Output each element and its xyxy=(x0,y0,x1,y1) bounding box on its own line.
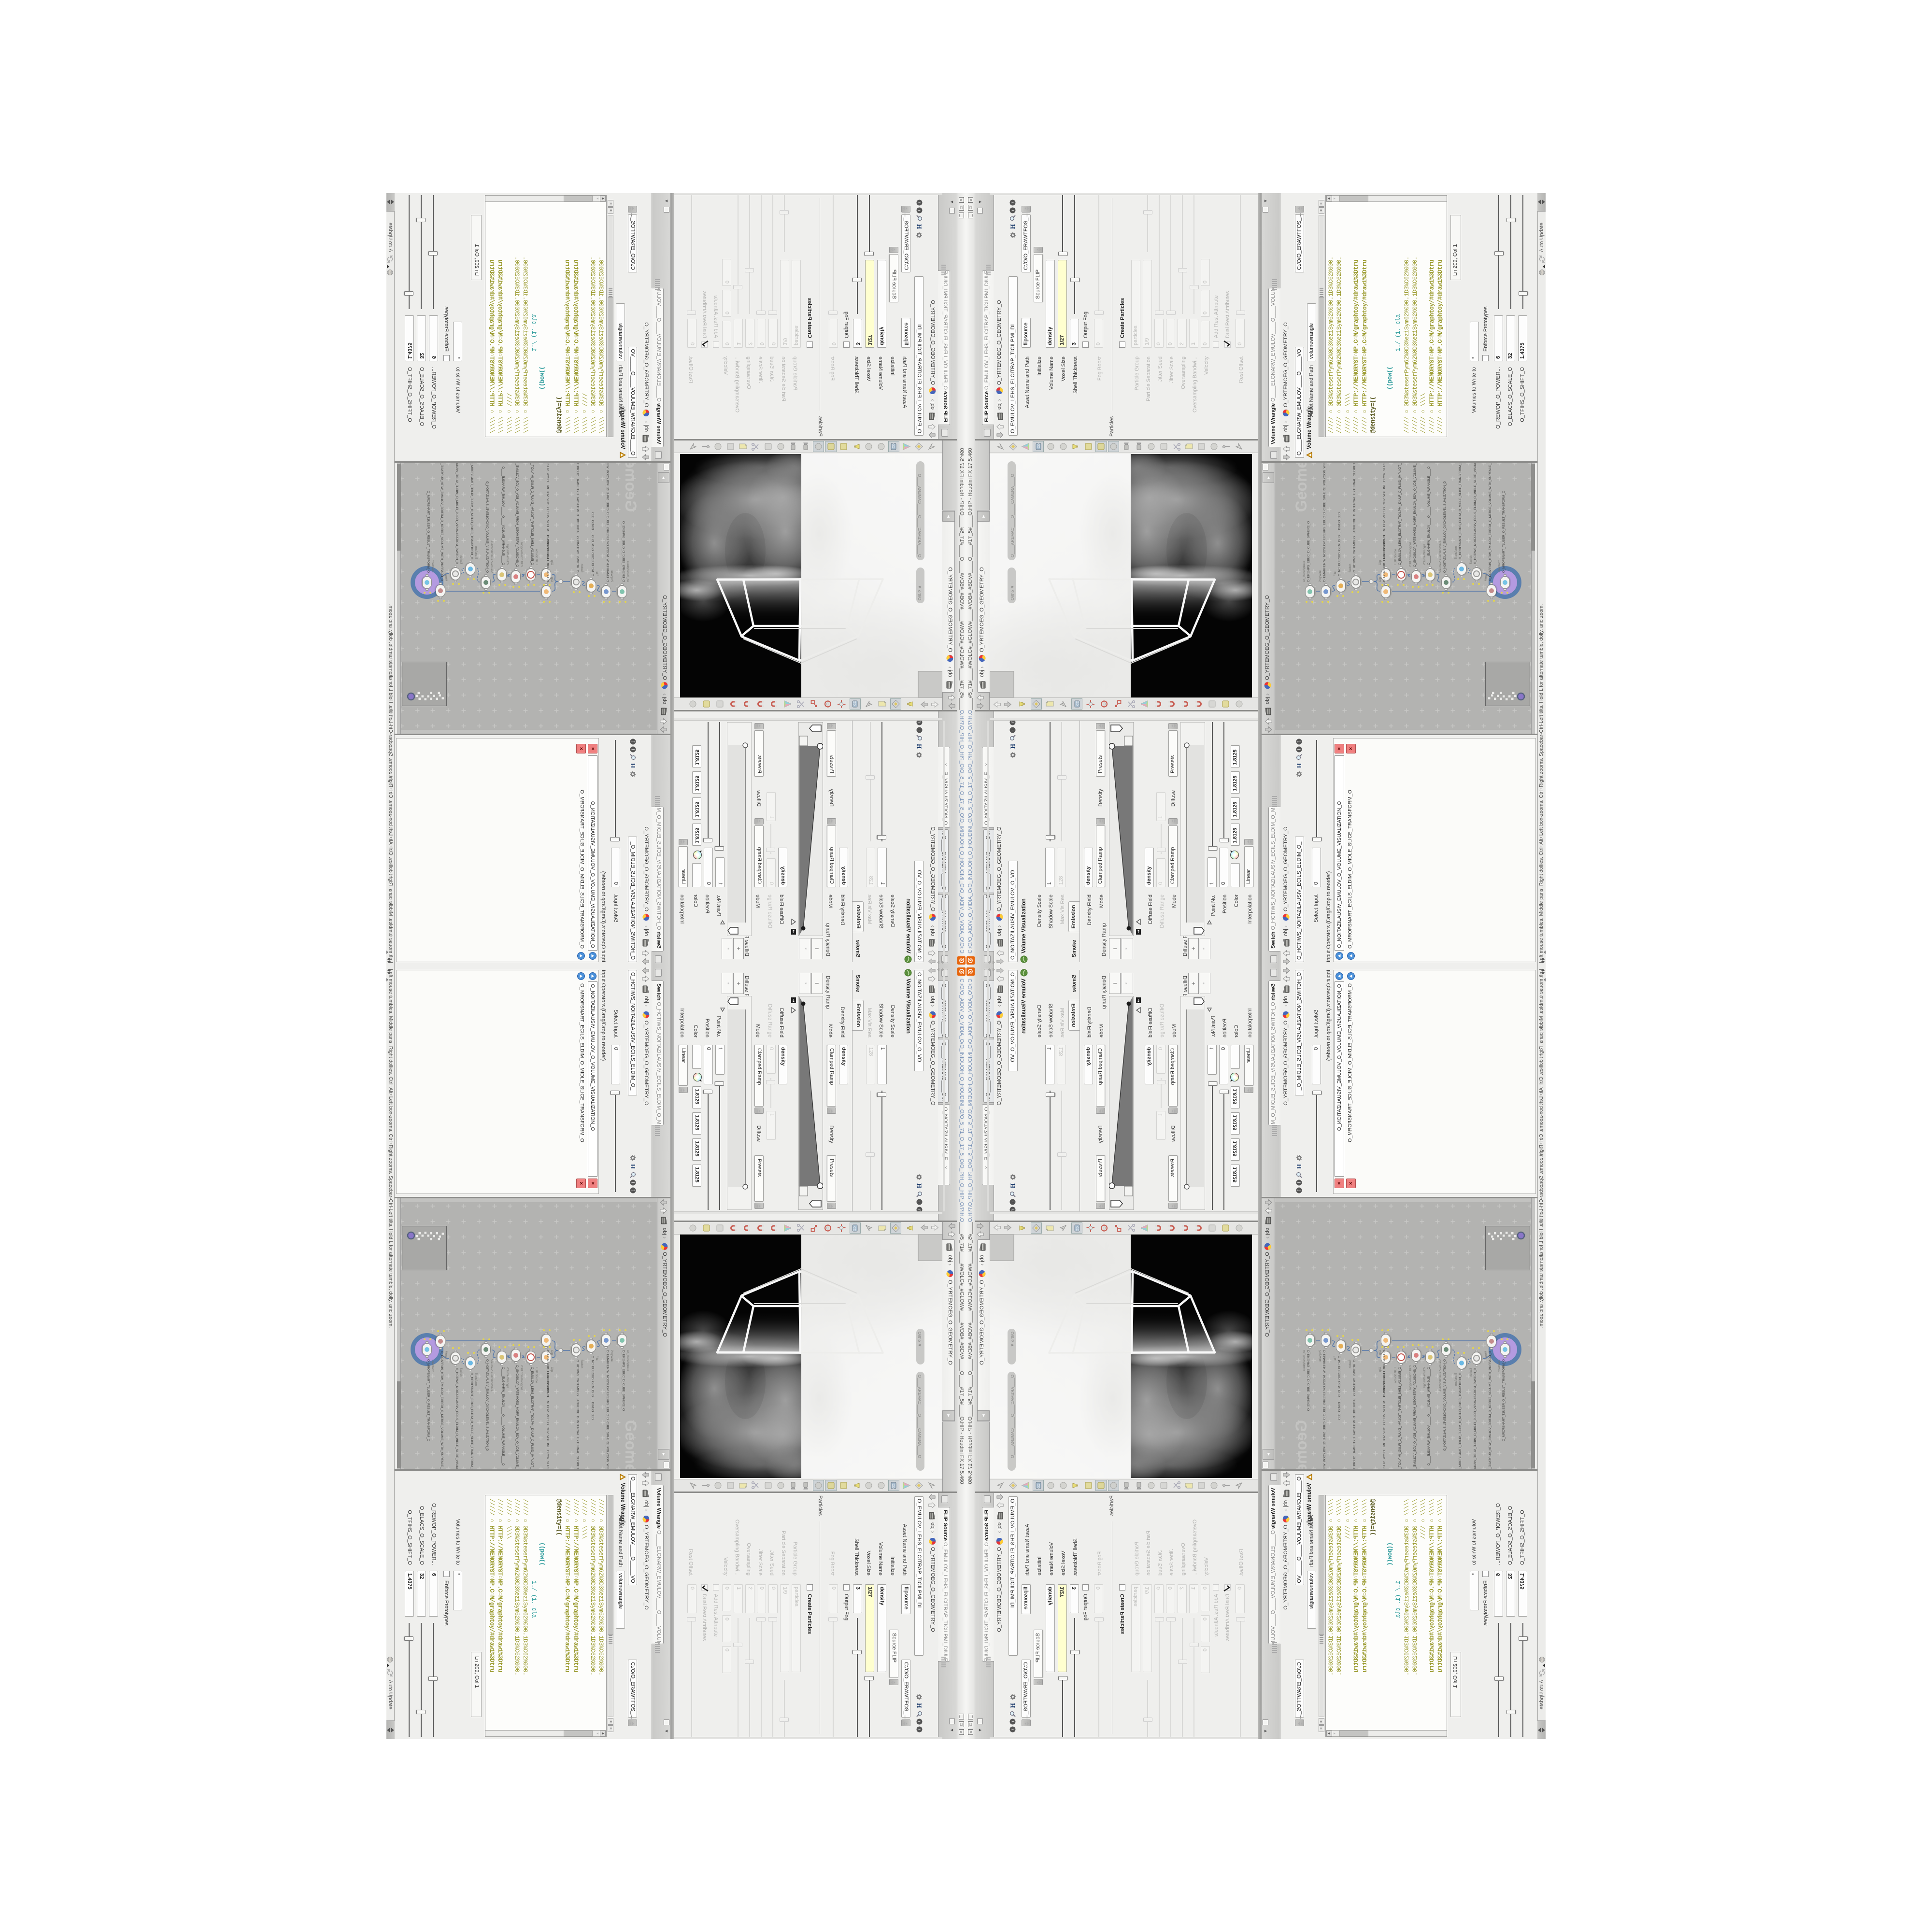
svg-text:Ortho ▼: Ortho ▼ xyxy=(917,585,922,600)
svg-text:i: i xyxy=(917,729,922,731)
svg-text:CD: CD xyxy=(891,443,895,448)
svg-text:?: ? xyxy=(917,1729,922,1731)
svg-text:O____AREMAC____O_____CAMERA___: O____AREMAC____O_____CAMERA____O xyxy=(1010,1375,1015,1458)
svg-text:O____AREMAC____O_____CAMERA___: O____AREMAC____O_____CAMERA____O xyxy=(1010,474,1015,557)
svg-text:i: i xyxy=(1010,729,1015,731)
svg-text:O____AREMAC____O_____CAMERA___: O____AREMAC____O_____CAMERA____O xyxy=(917,1375,922,1458)
svg-text:?: ? xyxy=(631,1190,636,1192)
svg-text:i: i xyxy=(631,749,636,750)
svg-text:?: ? xyxy=(1010,1209,1015,1211)
svg-text:CD: CD xyxy=(891,1484,895,1489)
svg-text:O____AREMAC____O_____CAMERA___: O____AREMAC____O_____CAMERA____O xyxy=(917,474,922,557)
svg-text:?: ? xyxy=(1010,1729,1015,1731)
svg-text:i: i xyxy=(1297,749,1302,750)
svg-text:CD: CD xyxy=(852,701,856,706)
svg-text:CD: CD xyxy=(1076,1226,1080,1231)
svg-text:CD: CD xyxy=(1076,701,1080,706)
svg-text:Ortho ▼: Ortho ▼ xyxy=(1010,1332,1015,1347)
svg-text:i: i xyxy=(1010,210,1015,211)
svg-text:?: ? xyxy=(1010,202,1015,204)
svg-text:?: ? xyxy=(917,202,922,204)
svg-text:CD: CD xyxy=(852,1226,856,1231)
svg-text:?: ? xyxy=(917,1209,922,1211)
svg-text:?: ? xyxy=(631,741,636,743)
svg-text:?: ? xyxy=(1297,741,1302,743)
svg-text:CD: CD xyxy=(1037,443,1041,448)
svg-text:CD: CD xyxy=(1037,1484,1041,1489)
svg-text:Ortho ▼: Ortho ▼ xyxy=(1010,585,1015,600)
svg-text:?: ? xyxy=(1010,722,1015,724)
svg-text:?: ? xyxy=(917,722,922,724)
svg-text:?: ? xyxy=(1297,1190,1302,1192)
svg-text:i: i xyxy=(917,210,922,211)
svg-text:Ortho ▼: Ortho ▼ xyxy=(917,1332,922,1347)
